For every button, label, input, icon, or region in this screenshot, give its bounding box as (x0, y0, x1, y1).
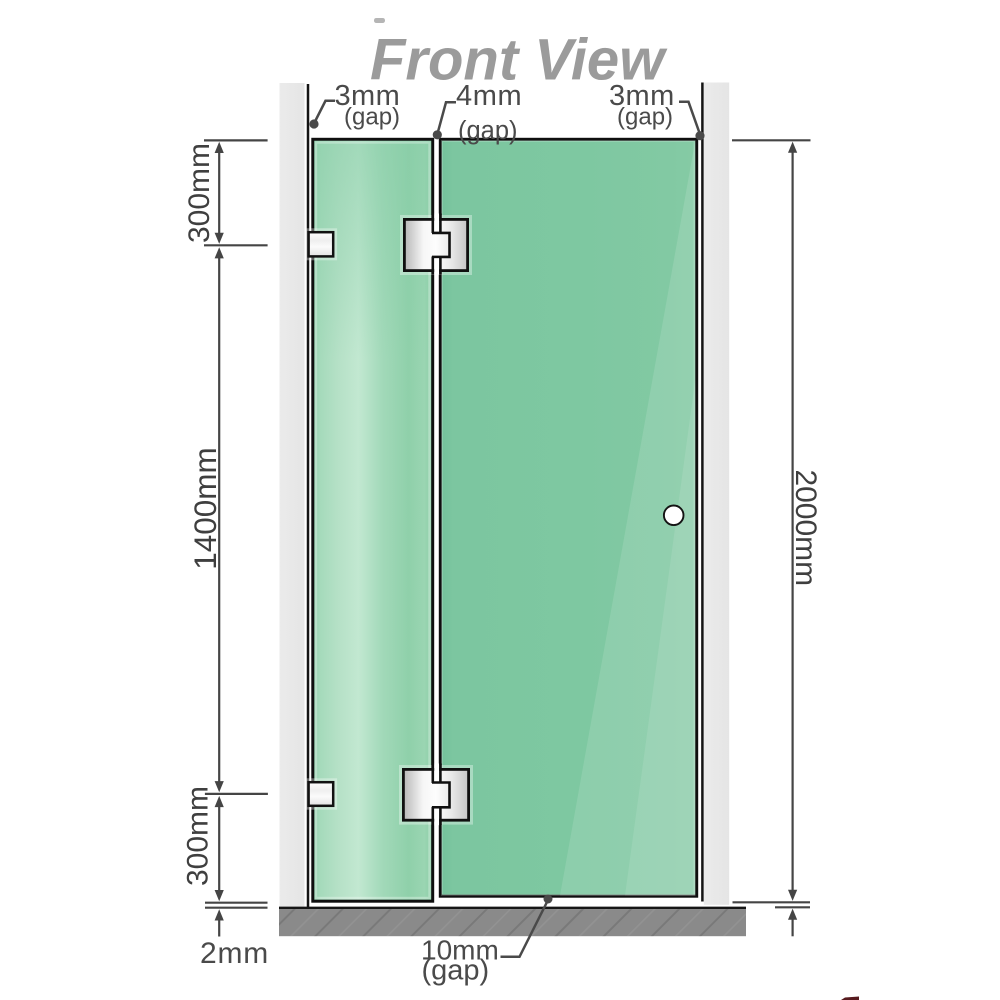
svg-text:300mm: 300mm (182, 786, 215, 886)
svg-text:(gap): (gap) (344, 104, 400, 131)
svg-text:1400mm: 1400mm (187, 447, 223, 570)
svg-text:2mm: 2mm (200, 937, 269, 970)
svg-text:4mm: 4mm (456, 80, 522, 112)
svg-text:2000mm: 2000mm (789, 469, 822, 586)
svg-text:(gap): (gap) (458, 117, 518, 145)
svg-text:(gap): (gap) (422, 955, 490, 987)
svg-text:(gap): (gap) (617, 104, 673, 131)
svg-text:300mm: 300mm (183, 143, 216, 243)
